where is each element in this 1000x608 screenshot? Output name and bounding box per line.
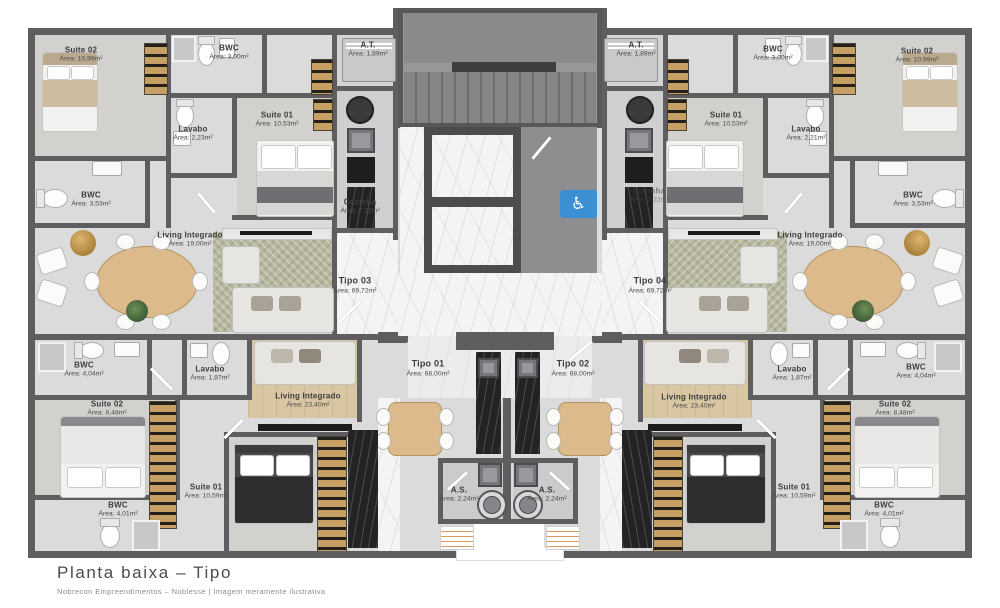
room-area: Área: 1,87m² — [772, 375, 811, 384]
wall-inter-unit — [602, 334, 972, 340]
chair — [829, 314, 848, 330]
tv-console — [648, 424, 742, 431]
wardrobe — [668, 100, 686, 130]
room-label: BWCÁrea: 4,01m² — [98, 500, 137, 519]
stair-landing — [404, 13, 596, 63]
room-label: LavaboÁrea: 2,23m² — [173, 124, 212, 143]
room-area: Área: 19,00m² — [777, 241, 842, 250]
room-label: Suite 02Área: 10,99m² — [895, 46, 938, 65]
room-name: A.S. — [527, 485, 566, 495]
room-label: Suite 01Área: 10,59m² — [184, 482, 227, 501]
shower — [804, 36, 828, 62]
room-name: Suite 02 — [875, 399, 914, 409]
toilet-tank — [955, 189, 964, 208]
bed-throw — [667, 187, 743, 203]
unit-label: Tipo 02Área: 68,00m² — [551, 359, 594, 380]
floor-plan-canvas: ♿ Suite 02Área: 10,99m² BWCÁrea: 3,00m² … — [0, 0, 1000, 608]
unit-label: Tipo 04Área: 69,72m² — [628, 276, 671, 297]
room-label: CozinhaÁrea: 7,22m² — [340, 197, 379, 216]
room-area: Área: 8,48m² — [875, 410, 914, 419]
room-label: Suite 02Área: 8,48m² — [87, 399, 126, 418]
room-name: BWC — [71, 190, 110, 200]
room-name: Suite 01 — [704, 110, 747, 120]
wall — [763, 173, 834, 178]
dining-table — [558, 402, 612, 456]
room-name: BWC — [893, 190, 932, 200]
room-area: Área: 8,48m² — [87, 410, 126, 419]
sink — [792, 343, 810, 358]
armchair — [931, 278, 964, 308]
shower — [934, 342, 962, 372]
room-area: Área: 4,01m² — [864, 511, 903, 520]
room-area: Área: 7,22m² — [340, 208, 379, 217]
room-name: Suite 02 — [895, 46, 938, 56]
unit-name: Tipo 01 — [406, 359, 449, 371]
room-area: Área: 3,53m² — [893, 201, 932, 210]
room-label: Suite 02Área: 10,99m² — [59, 45, 102, 64]
room-label: Living IntegradoÁrea: 23,40m² — [661, 392, 726, 411]
wall — [438, 458, 508, 463]
room-area: Área: 4,04m² — [896, 373, 935, 382]
chair — [900, 272, 916, 291]
wall — [602, 228, 668, 233]
toilet-tank — [917, 342, 926, 359]
wall — [813, 340, 818, 398]
room-area: Área: 23,40m² — [661, 403, 726, 412]
room-name: Living Integrado — [157, 230, 222, 240]
wall — [663, 93, 834, 98]
core-marble-pilaster — [400, 127, 424, 273]
room-label: Suite 01Área: 10,59m² — [772, 482, 815, 501]
room-area: Área: 7,22m² — [629, 197, 668, 206]
room-area: Área: 4,01m² — [98, 511, 137, 520]
unit-area: Área: 69,72m² — [333, 287, 376, 296]
pillow — [668, 145, 703, 169]
room-label: Living IntegradoÁrea: 23,40m² — [275, 391, 340, 410]
entry-grate — [440, 526, 474, 550]
room-label: BWCÁrea: 3,00m² — [209, 43, 248, 62]
room-name: Suite 02 — [59, 45, 102, 55]
accessibility-glyph: ♿ — [571, 196, 586, 213]
toilet — [880, 524, 900, 548]
room-label: BWCÁrea: 4,04m² — [64, 360, 103, 379]
stair-core — [398, 8, 602, 128]
unit-label: Tipo 01Área: 68,00m² — [406, 359, 449, 380]
room-area: Área: 23,40m² — [275, 402, 340, 411]
washing-machine — [477, 490, 507, 520]
kitchen-sink — [480, 360, 497, 376]
wall — [602, 86, 668, 91]
unit-area: Área: 68,00m² — [551, 370, 594, 379]
wall — [850, 156, 855, 228]
room-name: BWC — [98, 500, 137, 510]
pillow — [859, 467, 895, 488]
wall — [748, 395, 972, 400]
room-name: Suite 01 — [184, 482, 227, 492]
chair — [609, 408, 624, 426]
sofa — [666, 287, 768, 333]
pillow — [906, 66, 929, 80]
elevator-block — [424, 127, 521, 273]
wall — [850, 223, 972, 228]
wardrobe — [654, 437, 682, 554]
bed-headboard — [687, 445, 765, 453]
door-swing — [784, 192, 803, 214]
pillow — [930, 66, 953, 80]
room-label: Suite 01Área: 10,53m² — [704, 110, 747, 129]
wardrobe — [824, 402, 850, 528]
room-name: BWC — [896, 362, 935, 372]
pillow — [726, 455, 760, 476]
room-label: BWCÁrea: 4,04m² — [896, 362, 935, 381]
chair — [865, 234, 884, 250]
room-area: Área: 10,53m² — [255, 121, 298, 130]
unit-area: Área: 69,72m² — [628, 287, 671, 296]
room-name: A.S. — [439, 485, 478, 495]
room-name: Lavabo — [190, 364, 229, 374]
room-label: BWCÁrea: 3,00m² — [753, 44, 792, 63]
sofa-cushion — [707, 349, 729, 363]
toilet — [770, 342, 788, 366]
room-name: BWC — [209, 43, 248, 53]
pillow — [690, 455, 724, 476]
room-label: Living IntegradoÁrea: 19,00m² — [157, 230, 222, 249]
laundry-sink — [516, 465, 536, 485]
range-hood — [626, 96, 654, 124]
elevator-cab — [432, 135, 513, 197]
room-name: Living Integrado — [777, 230, 842, 240]
room-label: LavaboÁrea: 2,21m² — [786, 124, 825, 143]
stair-steps — [404, 72, 596, 123]
kitchen-sink — [519, 360, 536, 376]
entry-grate — [546, 526, 580, 550]
room-name: Lavabo — [173, 124, 212, 134]
unit-name: Tipo 02 — [551, 359, 594, 371]
unit-name: Tipo 03 — [333, 276, 376, 288]
room-area: Área: 1,89m² — [348, 51, 387, 60]
page-title: Planta baixa – Tipo — [57, 563, 232, 583]
room-label: CozinhaÁrea: 7,22m² — [629, 186, 668, 205]
bed — [854, 416, 940, 498]
wall — [763, 98, 768, 178]
room-name: Lavabo — [772, 364, 811, 374]
room-name: BWC — [864, 500, 903, 510]
stove — [625, 157, 653, 183]
plant — [852, 300, 874, 322]
room-name: Living Integrado — [275, 391, 340, 401]
shower — [840, 520, 868, 551]
room-name: Suite 02 — [87, 399, 126, 409]
chair — [792, 272, 808, 291]
stair-rail — [452, 62, 556, 72]
wardrobe — [668, 60, 688, 94]
room-name: A.T. — [616, 40, 655, 50]
sofa-cushion — [727, 296, 749, 311]
bed-blanket — [855, 426, 939, 464]
room-area: Área: 1,89m² — [616, 51, 655, 60]
room-label: BWCÁrea: 4,01m² — [864, 500, 903, 519]
unit-label: Tipo 03Área: 69,72m² — [333, 276, 376, 297]
wall — [638, 334, 643, 422]
pouf — [904, 230, 930, 256]
room-label: Suite 02Área: 8,48m² — [875, 399, 914, 418]
room-area: Área: 2,24m² — [527, 496, 566, 505]
pillow — [704, 145, 739, 169]
wall — [573, 458, 578, 524]
accessibility-icon: ♿ — [560, 190, 597, 218]
room-name: BWC — [64, 360, 103, 370]
room-area: Área: 4,04m² — [64, 371, 103, 380]
chair — [546, 408, 561, 426]
room-label: A.S.Área: 2,24m² — [527, 485, 566, 504]
unit-name: Tipo 04 — [628, 276, 671, 288]
kitchen-sink — [627, 130, 651, 151]
room-area: Área: 2,24m² — [439, 496, 478, 505]
room-name: Suite 01 — [772, 482, 815, 492]
chaise — [740, 246, 778, 284]
bed-blanket — [903, 80, 957, 107]
room-label: A.S.Área: 2,24m² — [439, 485, 478, 504]
chair — [546, 432, 561, 450]
room-area: Área: 10,99m² — [895, 57, 938, 66]
room-area: Área: 3,53m² — [71, 201, 110, 210]
room-name: Suite 01 — [255, 110, 298, 120]
sofa — [644, 341, 746, 385]
bed — [686, 444, 766, 524]
hall-marble-main — [398, 273, 602, 336]
wall — [733, 28, 738, 98]
room-label: Living IntegradoÁrea: 19,00m² — [777, 230, 842, 249]
wall-outer-right — [965, 28, 972, 558]
wall-outer-left — [28, 28, 35, 558]
room-area: Área: 3,00m² — [209, 54, 248, 63]
room-label: A.T.Área: 1,89m² — [616, 40, 655, 59]
armchair — [931, 246, 964, 276]
room-name: A.T. — [348, 40, 387, 50]
wardrobe — [833, 44, 855, 94]
room-area: Área: 1,87m² — [190, 375, 229, 384]
room-area: Área: 10,99m² — [59, 56, 102, 65]
wall — [508, 458, 578, 463]
room-name: Living Integrado — [661, 392, 726, 402]
room-area: Área: 3,00m² — [753, 55, 792, 64]
room-label: LavaboÁrea: 1,87m² — [772, 364, 811, 383]
vanity-sink — [878, 161, 908, 176]
tv — [688, 231, 760, 235]
elevator-cab — [432, 207, 513, 265]
wall — [748, 340, 753, 398]
room-area: Área: 10,53m² — [704, 121, 747, 130]
room-label: LavaboÁrea: 1,87m² — [190, 364, 229, 383]
bed-blanket — [687, 477, 765, 523]
kitchen-counter — [622, 430, 652, 548]
room-name: Cozinha — [629, 186, 668, 196]
door-swing — [827, 367, 850, 390]
room-label: A.T.Área: 1,89m² — [348, 40, 387, 59]
laundry-sink — [480, 465, 500, 485]
room-label: BWCÁrea: 3,53m² — [71, 190, 110, 209]
bed — [666, 140, 744, 217]
room-name: Lavabo — [786, 124, 825, 134]
room-area: Área: 10,59m² — [772, 493, 815, 502]
wall-entry-stub — [456, 332, 554, 350]
room-area: Área: 2,21m² — [786, 135, 825, 144]
vanity-sink — [860, 342, 886, 357]
room-name: BWC — [753, 44, 792, 54]
unit-area: Área: 68,00m² — [406, 370, 449, 379]
pillow — [897, 467, 933, 488]
toilet-tank — [806, 99, 824, 107]
room-label: BWCÁrea: 3,53m² — [893, 190, 932, 209]
room-area: Área: 10,59m² — [184, 493, 227, 502]
room-area: Área: 19,00m² — [157, 241, 222, 250]
room-label: Suite 01Área: 10,53m² — [255, 110, 298, 129]
sofa-cushion — [679, 349, 701, 363]
room-name: Cozinha — [340, 197, 379, 207]
room-area: Área: 2,23m² — [173, 135, 212, 144]
page-subtitle: Nobrecon Empreendimentos – Noblesse | Im… — [57, 587, 325, 596]
sofa-cushion — [699, 296, 721, 311]
